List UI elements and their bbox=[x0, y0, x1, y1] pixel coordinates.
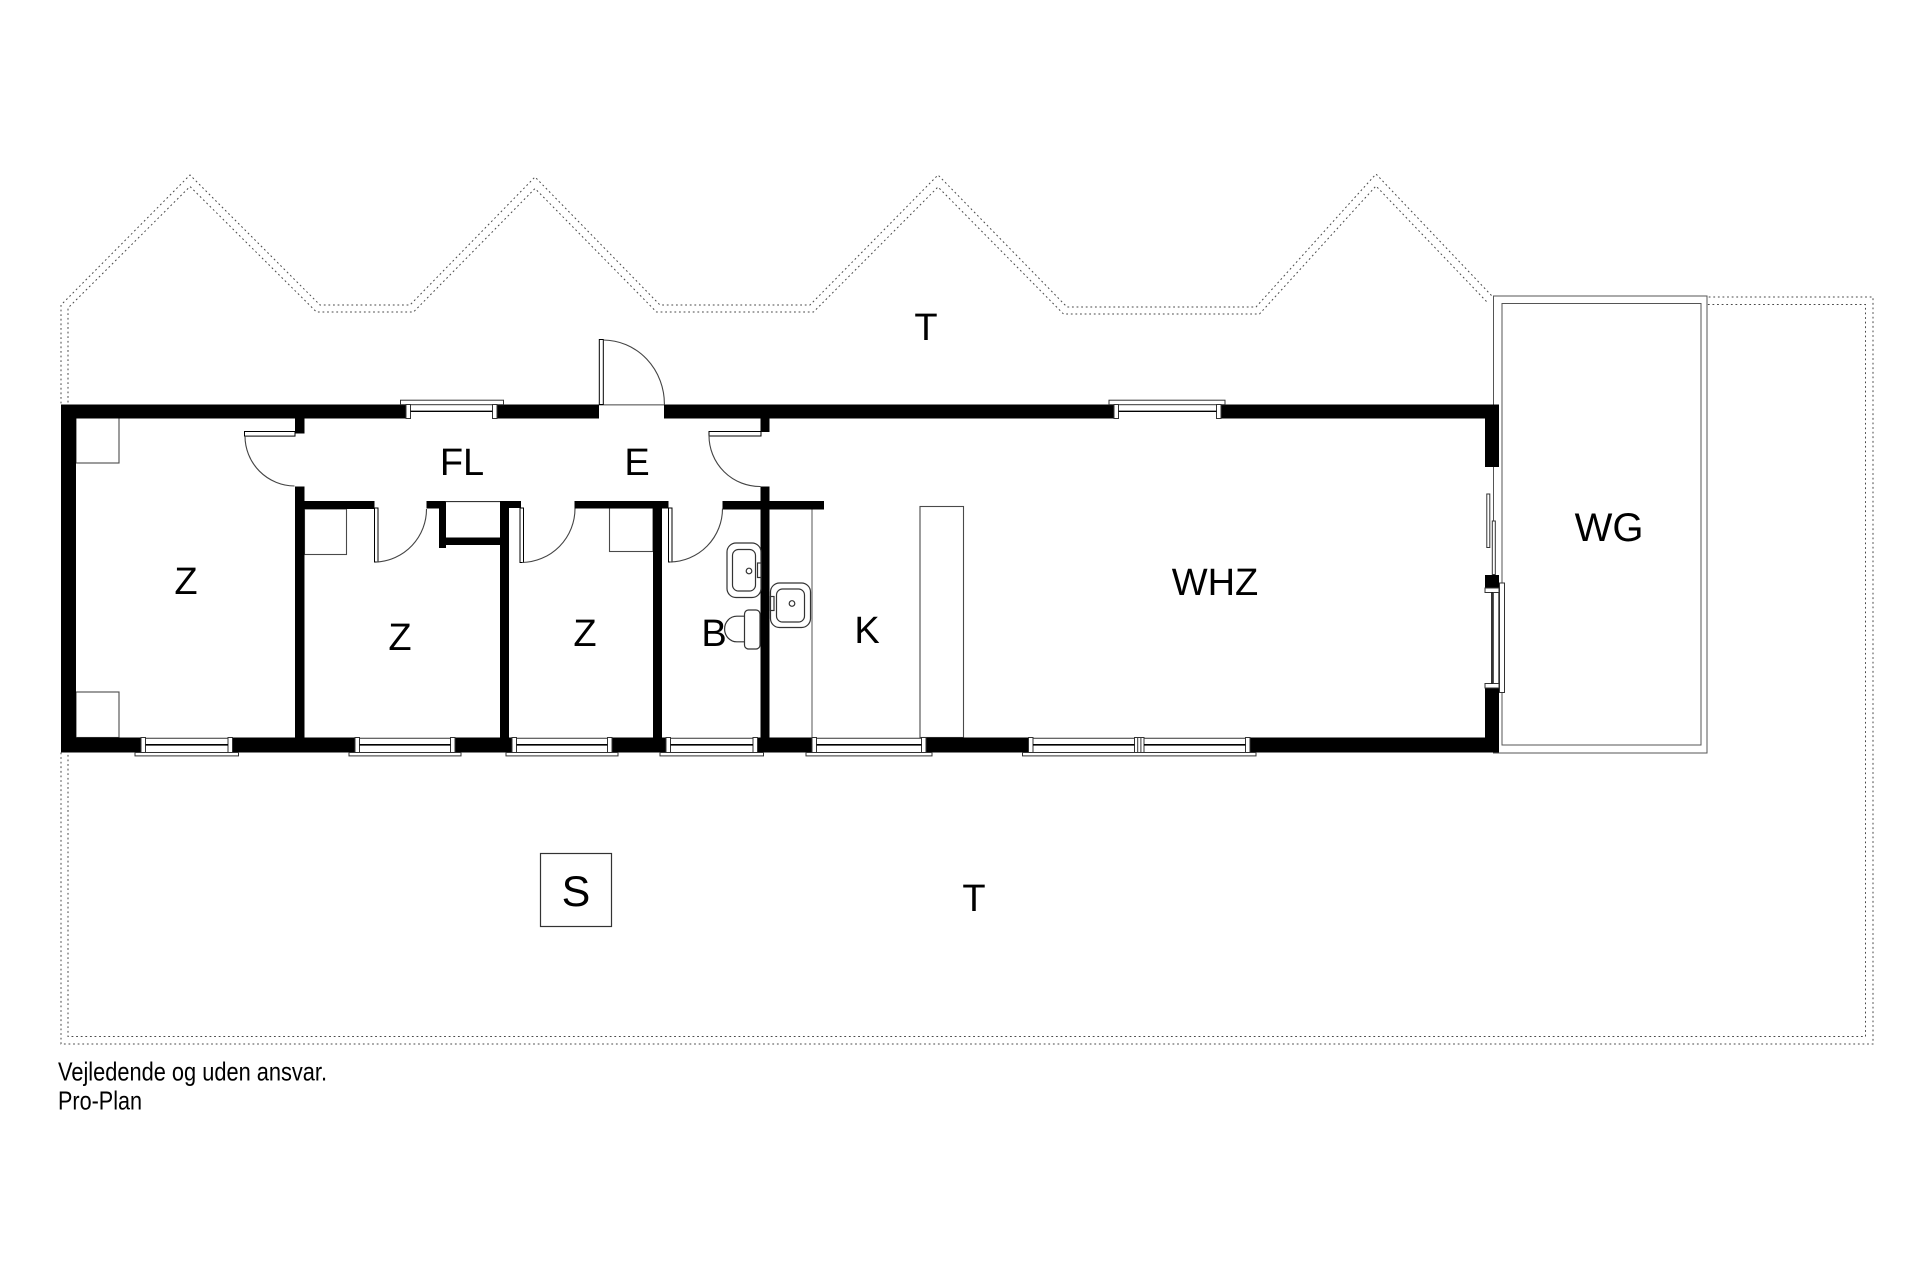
svg-text:B: B bbox=[701, 613, 726, 655]
svg-text:Z: Z bbox=[388, 617, 411, 659]
svg-text:E: E bbox=[624, 442, 649, 484]
svg-text:Z: Z bbox=[174, 561, 197, 603]
svg-text:FL: FL bbox=[440, 442, 484, 484]
svg-text:K: K bbox=[854, 610, 879, 652]
svg-text:T: T bbox=[914, 307, 937, 349]
svg-text:T: T bbox=[962, 878, 985, 920]
svg-text:WG: WG bbox=[1575, 506, 1644, 550]
svg-text:Z: Z bbox=[573, 613, 596, 655]
svg-text:S: S bbox=[562, 868, 591, 916]
svg-text:Vejledende og uden ansvar.: Vejledende og uden ansvar. bbox=[58, 1057, 327, 1087]
svg-text:Pro-Plan: Pro-Plan bbox=[58, 1086, 142, 1116]
svg-text:WHZ: WHZ bbox=[1172, 562, 1259, 604]
